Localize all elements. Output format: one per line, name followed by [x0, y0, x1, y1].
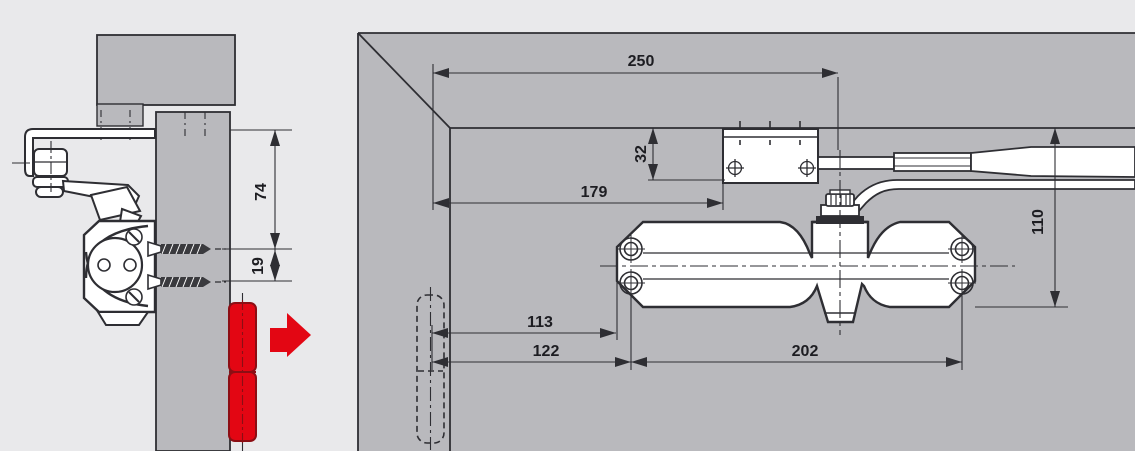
door-closer-installation-diagram: 250 179 32 110 113 122 202: [0, 0, 1135, 451]
slotted-screw-icon: [126, 289, 142, 305]
closer-body: [617, 222, 975, 322]
dim-202-label: 202: [792, 343, 819, 360]
dim-122-label: 122: [533, 343, 560, 360]
side-section-view: 74 19: [12, 35, 311, 451]
frame-rebate: [97, 104, 143, 126]
dim-113-label: 113: [527, 314, 553, 331]
closer-body-side: [84, 221, 155, 325]
dim-110-label: 110: [1030, 209, 1047, 235]
arm-link: [63, 181, 141, 225]
dim-74-label: 74: [253, 183, 270, 201]
direction-arrow-icon: [270, 313, 311, 357]
frame-lintel-section: [97, 35, 235, 105]
closer-foot: [98, 312, 148, 325]
dim-179-label: 179: [581, 184, 608, 201]
left-dimension-labels: 74 19: [250, 183, 270, 275]
door-hinge-red: [229, 293, 256, 451]
dim-32-label: 32: [633, 145, 650, 163]
front-elevation-view: 250 179 32 110 113 122 202: [358, 33, 1135, 451]
slotted-screw-icon: [126, 229, 142, 245]
arm-bracket: [723, 121, 818, 183]
dim-250-label: 250: [628, 53, 655, 70]
dim-19-label: 19: [250, 257, 267, 275]
